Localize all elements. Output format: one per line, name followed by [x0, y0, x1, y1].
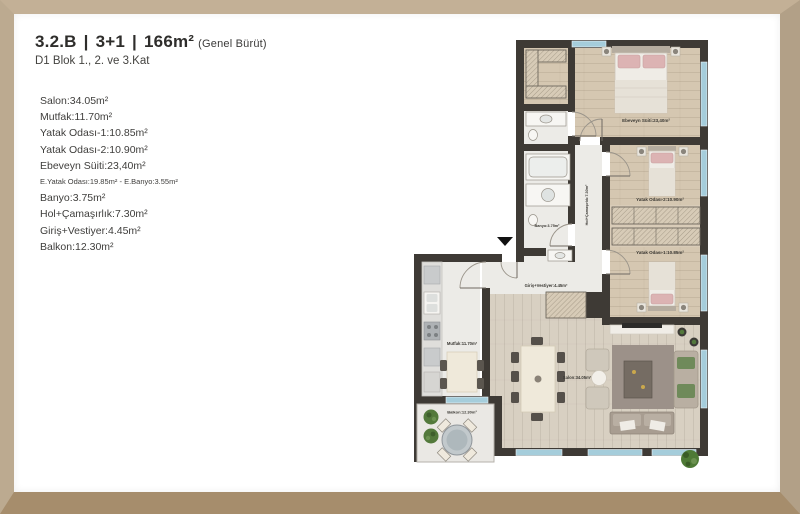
legend-item: Yatak Odası-2:10.90m²	[40, 142, 178, 158]
gross-area: 166m²	[144, 32, 194, 52]
stove-icon	[424, 322, 440, 340]
area-legend: Salon:34.05m² Mutfak:11.70m² Yatak Odası…	[40, 93, 178, 255]
picture-frame: 3.2.B | 3+1 | 166m² (Genel Bürüt) D1 Blo…	[0, 0, 800, 514]
tv-icon	[622, 323, 662, 328]
entrance-arrow-icon	[497, 237, 513, 246]
room-label-ebeveyn: Ebeveyn Süiti:23,40m²	[622, 118, 670, 123]
separator: |	[84, 32, 89, 52]
gross-area-note: (Genel Bürüt)	[198, 38, 267, 50]
armchair-icon	[586, 349, 609, 371]
plan-header: 3.2.B | 3+1 | 166m² (Genel Bürüt) D1 Blo…	[35, 32, 267, 67]
legend-item: Banyo:3.75m²	[40, 190, 178, 206]
legend-item: Yatak Odası-1:10.85m²	[40, 125, 178, 141]
toilet-icon	[529, 130, 538, 141]
plan-title: 3.2.B | 3+1 | 166m² (Genel Bürüt)	[35, 32, 267, 52]
room-label-banyo: Banyo:3.75m²	[535, 224, 561, 228]
legend-item: Ebeveyn Süiti:23,40m²	[40, 158, 178, 174]
legend-item: Hol+Çamaşırlık:7.30m²	[40, 206, 178, 222]
side-table-icon	[592, 371, 607, 386]
block-subtitle: D1 Blok 1., 2. ve 3.Kat	[35, 55, 267, 67]
floor-plan-svg: Ebeveyn Süiti:23,40m² Yatak Odası-2:10.9…	[400, 20, 720, 485]
room-config: 3+1	[96, 32, 125, 52]
plant-icon	[681, 450, 699, 468]
legend-item: Balkon:12.30m²	[40, 239, 178, 255]
fridge-icon	[424, 266, 440, 284]
unit-code: 3.2.B	[35, 32, 77, 52]
kitchen-table-icon	[447, 352, 477, 392]
legend-item: Giriş+Vestiyer:4.45m²	[40, 223, 178, 239]
page: 3.2.B | 3+1 | 166m² (Genel Bürüt) D1 Blo…	[14, 14, 780, 492]
dishwasher-icon	[424, 348, 440, 366]
room-label-balkon: Balkon:12.30m²	[447, 410, 477, 415]
separator: |	[132, 32, 137, 52]
legend-item: E.Yatak Odası:19.85m² - E.Banyo:3.55m²	[40, 174, 178, 190]
room-label-giris: Giriş+Vestiyer:4.45m²	[525, 283, 568, 288]
legend-item: Mutfak:11.70m²	[40, 109, 178, 125]
room-label-mutfak: Mutfak:11.70m²	[447, 341, 478, 346]
room-label-salon: Salon:34.05m²	[563, 375, 592, 380]
room-label-yatak2: Yatak Odası-2:10.90m²	[636, 197, 684, 202]
coffee-table-icon	[624, 361, 652, 398]
room-label-hol: Hol+Çamaşırlık:7.30m²	[585, 184, 589, 226]
room-label-yatak1: Yatak Odası-1:10.85m²	[636, 250, 684, 255]
armchair-icon	[586, 387, 609, 409]
legend-item: Salon:34.05m²	[40, 93, 178, 109]
